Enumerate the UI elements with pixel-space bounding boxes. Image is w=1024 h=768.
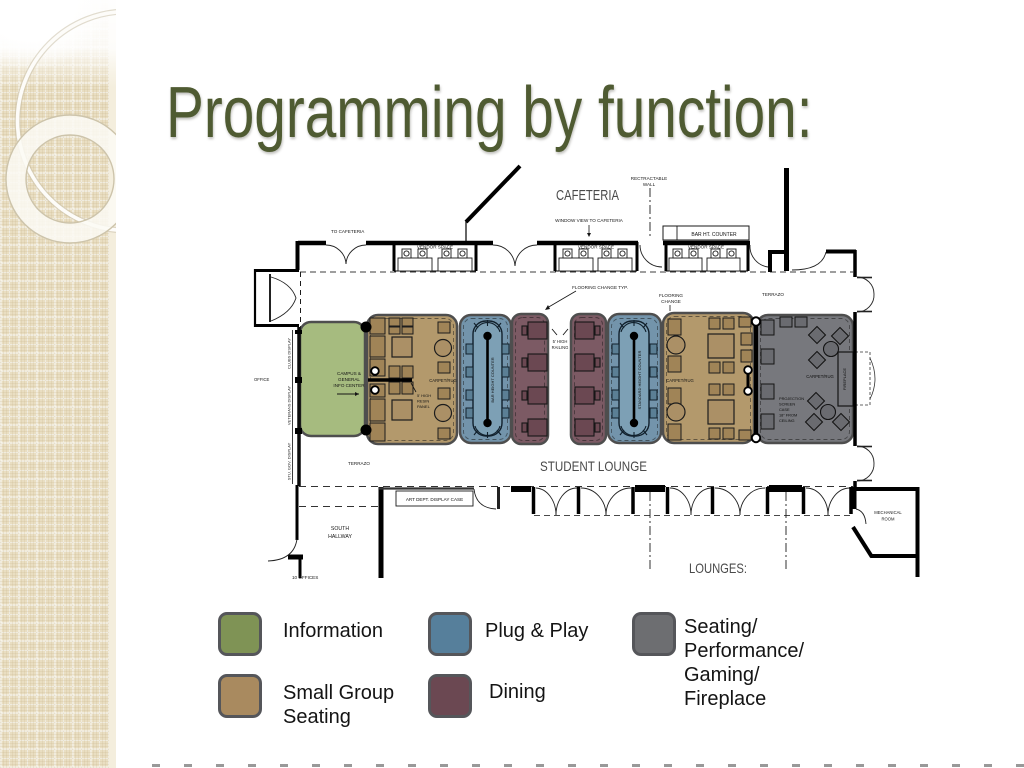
svg-text:CEILING: CEILING: [779, 418, 795, 423]
svg-text:CAFETERIA: CAFETERIA: [556, 187, 619, 204]
svg-text:5' HIGH: 5' HIGH: [417, 393, 431, 398]
svg-text:18" FROM: 18" FROM: [779, 413, 797, 418]
svg-text:CHANGE: CHANGE: [661, 299, 681, 304]
svg-text:MECHANICAL: MECHANICAL: [874, 510, 902, 515]
svg-text:WINDOW VIEW TO CAFETERIA: WINDOW VIEW TO CAFETERIA: [555, 218, 624, 223]
svg-text:VETERANS DISPLAY: VETERANS DISPLAY: [287, 386, 292, 426]
svg-text:TO CAFETERIA: TO CAFETERIA: [331, 229, 365, 234]
svg-text:CARPET/RUG: CARPET/RUG: [806, 374, 833, 379]
svg-text:CARPET/RUG: CARPET/RUG: [429, 378, 456, 383]
svg-text:VENDOR SPACE: VENDOR SPACE: [578, 245, 614, 250]
svg-text:CARPET/RUG: CARPET/RUG: [666, 378, 693, 383]
svg-text:TERRAZO: TERRAZO: [348, 461, 370, 466]
svg-text:RESIN: RESIN: [417, 399, 429, 404]
svg-text:10 OFFICES: 10 OFFICES: [292, 575, 318, 580]
svg-text:GENERAL: GENERAL: [338, 377, 360, 382]
svg-text:STANDARD HEIGHT COUNTER: STANDARD HEIGHT COUNTER: [637, 351, 642, 410]
svg-text:TERRAZO: TERRAZO: [762, 292, 784, 297]
svg-text:PROJECTION: PROJECTION: [779, 396, 804, 401]
svg-text:BAR HEIGHT COUNTER: BAR HEIGHT COUNTER: [490, 357, 495, 402]
svg-text:FLOORING: FLOORING: [659, 293, 683, 298]
svg-text:STUDENT LOUNGE: STUDENT LOUNGE: [540, 458, 647, 474]
svg-text:STU. GOV. DISPLAY: STU. GOV. DISPLAY: [287, 442, 292, 480]
svg-text:ROOM: ROOM: [881, 517, 895, 522]
svg-text:OFFICE: OFFICE: [254, 377, 270, 382]
svg-text:WALL: WALL: [643, 182, 656, 187]
svg-text:5' HIGH: 5' HIGH: [553, 339, 568, 344]
svg-text:VENDOR SPACE: VENDOR SPACE: [688, 245, 724, 250]
svg-text:BAR HT. COUNTER: BAR HT. COUNTER: [691, 232, 737, 238]
svg-text:RAILING: RAILING: [552, 345, 569, 350]
svg-text:PANEL: PANEL: [417, 404, 431, 409]
svg-text:LOUNGES:: LOUNGES:: [689, 560, 747, 576]
svg-text:CLUBS DISPLAY: CLUBS DISPLAY: [287, 338, 292, 369]
svg-text:SOUTH: SOUTH: [331, 526, 349, 532]
svg-text:HALLWAY: HALLWAY: [328, 534, 352, 540]
svg-text:SCREEN: SCREEN: [779, 402, 795, 407]
svg-text:CASE: CASE: [779, 407, 790, 412]
svg-text:INFO CENTER: INFO CENTER: [333, 383, 365, 388]
svg-text:CAMPUS &: CAMPUS &: [337, 371, 361, 376]
svg-text:VENDOR SPACE: VENDOR SPACE: [417, 245, 453, 250]
svg-text:RECTRACTABLE: RECTRACTABLE: [631, 176, 667, 181]
svg-text:FIREPLACE: FIREPLACE: [842, 368, 847, 391]
svg-text:ART DEPT. DISPLAY CASE: ART DEPT. DISPLAY CASE: [406, 497, 463, 502]
svg-text:FLOORING CHANGE TYP.: FLOORING CHANGE TYP.: [572, 285, 628, 290]
